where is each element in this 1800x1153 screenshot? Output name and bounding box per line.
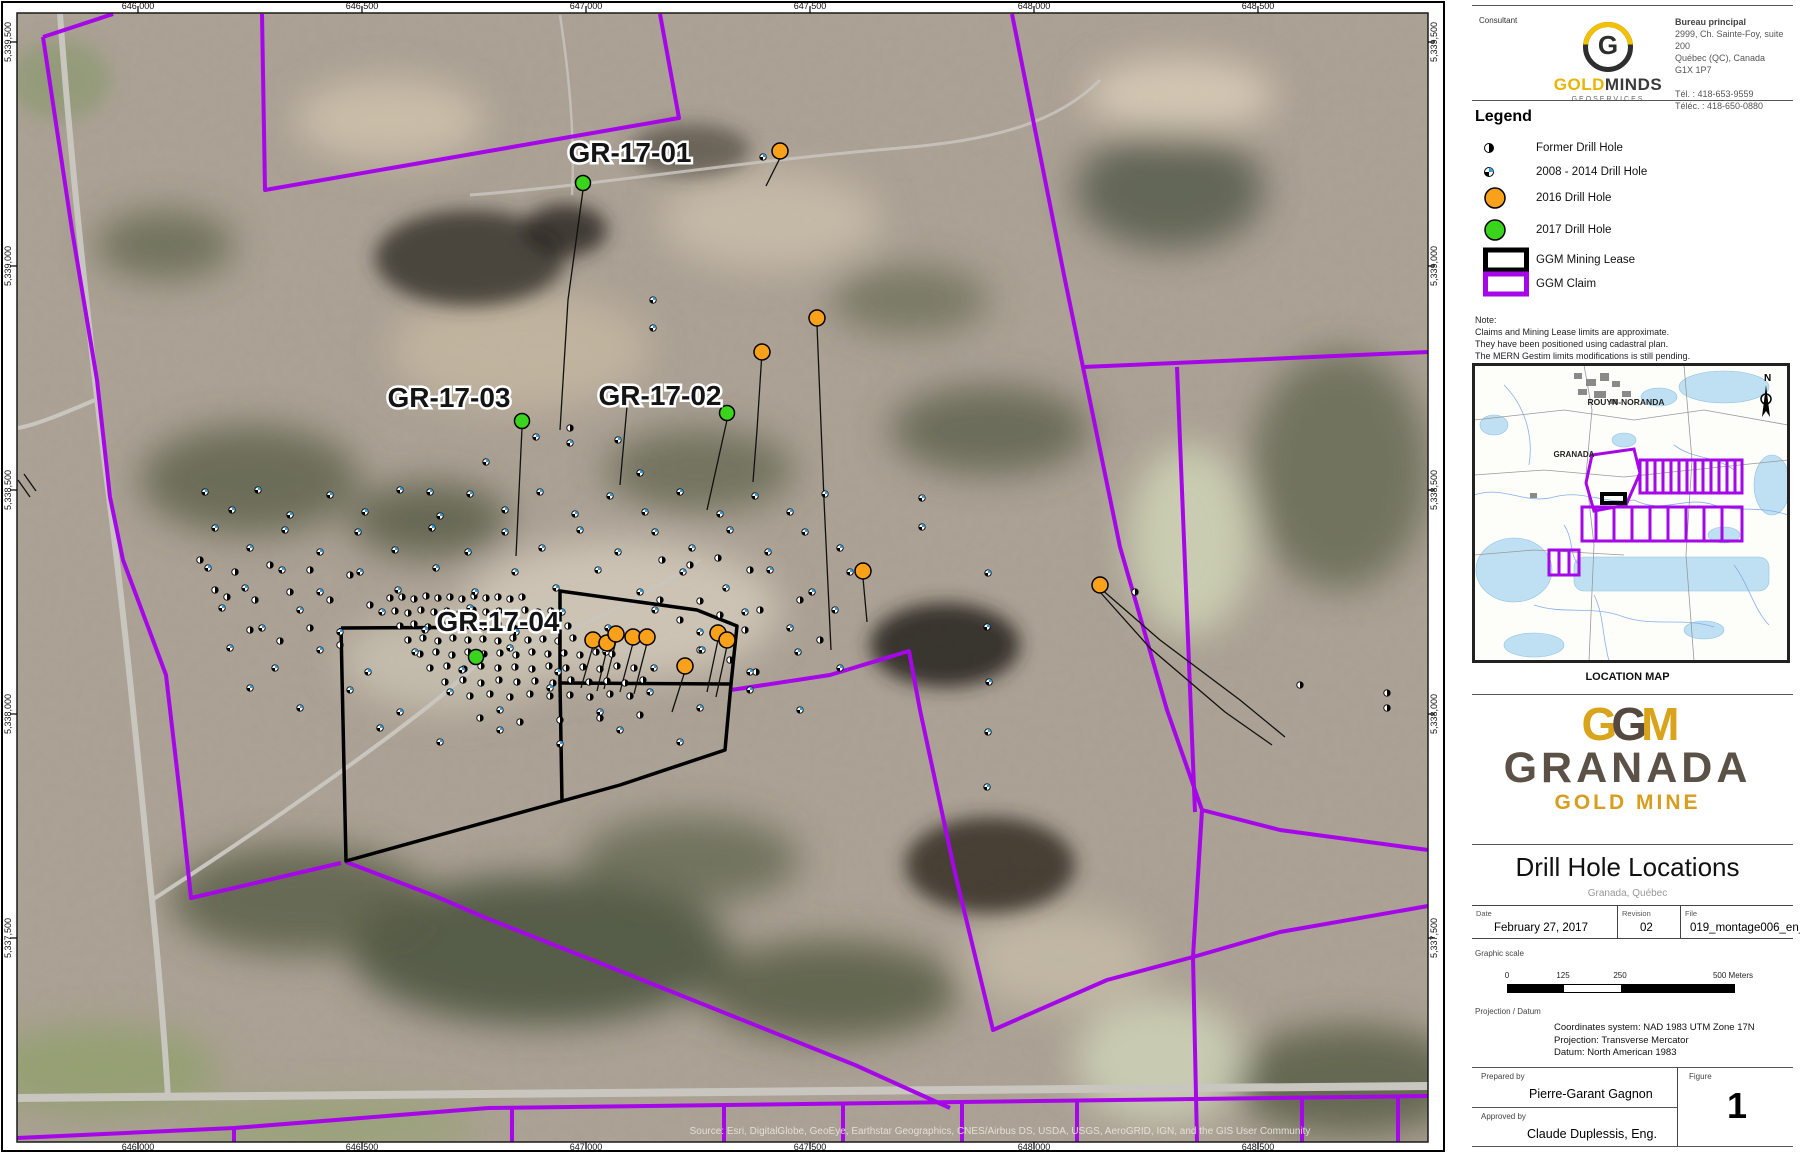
former-drill-hole xyxy=(580,664,586,670)
logo-word-dark: MINDS xyxy=(1605,75,1662,94)
former-drill-hole xyxy=(495,638,501,644)
prepared-by-label: Prepared by xyxy=(1481,1072,1525,1081)
former-drill-hole xyxy=(567,425,573,431)
former-drill-hole xyxy=(587,694,593,700)
2008-2014-drill-hole xyxy=(412,649,418,655)
former-drill-hole xyxy=(570,635,576,641)
2008-2014-drill-hole xyxy=(647,689,653,695)
former-drill-hole xyxy=(757,607,763,613)
2008-2014-drill-hole xyxy=(652,607,658,613)
2008-2014-drill-hole xyxy=(272,665,278,671)
former-drill-hole xyxy=(753,669,759,675)
former-drill-hole xyxy=(496,677,502,683)
2008-2014-drill-hole xyxy=(837,545,843,551)
former-drill-hole xyxy=(337,642,343,648)
former-drill-hole xyxy=(640,677,646,683)
2008-2014-drill-hole xyxy=(802,529,808,535)
2008-2014-drill-hole xyxy=(472,589,478,595)
former-drill-hole xyxy=(715,555,721,561)
former-drill-hole xyxy=(307,567,313,573)
2008-2014-drill-hole xyxy=(247,685,253,691)
revision-value: 02 xyxy=(1640,922,1653,934)
2008-2014-drill-hole xyxy=(986,679,992,685)
former-drill-hole xyxy=(465,637,471,643)
2008-2014-drill-hole xyxy=(747,687,753,693)
2008-2014-drill-hole xyxy=(597,709,603,715)
2008-2014-drill-hole xyxy=(984,784,990,790)
2008-2014-drill-hole xyxy=(677,739,683,745)
2008-2014-drill-hole xyxy=(985,729,991,735)
2008-2014-drill-hole xyxy=(533,434,539,440)
2008-2014-drill-hole xyxy=(615,437,621,443)
revision-label: Revision xyxy=(1622,909,1651,918)
2016-drill-hole xyxy=(809,310,825,326)
2008-2014-drill-hole xyxy=(362,509,368,515)
2008-2014-drill-hole xyxy=(847,569,853,575)
title-block-panel: Consultant G GOLDMINDS GEOSERVICES Burea… xyxy=(1455,0,1800,1153)
location-map-label: LOCATION MAP xyxy=(1455,671,1800,683)
2008-2014-drill-hole xyxy=(767,567,773,573)
2008-2014-drill-hole xyxy=(465,549,471,555)
scale-bar: 0 125 250 500 Meters xyxy=(1507,971,1747,997)
former-drill-hole xyxy=(307,625,313,631)
former-drill-hole xyxy=(747,567,753,573)
approved-by-label: Approved by xyxy=(1481,1112,1526,1121)
2008-2014-drill-hole xyxy=(279,567,285,573)
former-drill-hole xyxy=(586,679,592,685)
figure-number: 1 xyxy=(1727,1085,1747,1127)
former-drill-hole xyxy=(563,665,569,671)
former-drill-hole xyxy=(478,680,484,686)
former-drill-hole xyxy=(197,557,203,563)
2008-2014-drill-hole xyxy=(392,547,398,553)
drill-hole-label: GR-17-03 xyxy=(388,382,511,413)
former-drill-hole xyxy=(495,594,501,600)
2008-2014-drill-hole xyxy=(327,492,333,498)
former-drill-hole xyxy=(483,595,489,601)
office-title: Bureau principal xyxy=(1675,17,1746,27)
former-drill-hole xyxy=(529,666,535,672)
figure-title: Drill Hole Locations xyxy=(1455,852,1800,883)
meta-table: Date February 27, 2017 Revision 02 File … xyxy=(1472,905,1793,939)
former-drill-hole xyxy=(467,693,473,699)
map-canvas[interactable]: GR-17-01GR-17-02GR-17-03GR-17-04 Source:… xyxy=(0,0,1455,1153)
2008-2014-drill-hole xyxy=(212,525,218,531)
2008-2014-drill-hole xyxy=(680,569,686,575)
former-drill-hole xyxy=(477,715,483,721)
2016-drill-hole xyxy=(1092,577,1108,593)
former-drill-hole xyxy=(593,649,599,655)
2008-2014-drill-hole xyxy=(259,625,265,631)
former-drill-hole xyxy=(742,627,748,633)
drill-hole-label: GR-17-04 xyxy=(437,606,560,637)
legend-title: Legend xyxy=(1475,108,1532,126)
former-drill-hole xyxy=(561,650,567,656)
2008-2014-drill-hole xyxy=(557,741,563,747)
2008-2014-drill-hole xyxy=(422,627,428,633)
former-drill-hole xyxy=(565,623,571,629)
2008-2014-drill-hole xyxy=(219,605,225,611)
figure-subtitle: Granada, Québec xyxy=(1455,888,1800,899)
2008-2014-drill-hole xyxy=(429,525,435,531)
2008-2014-drill-hole xyxy=(652,529,658,535)
2008-2014-drill-hole xyxy=(727,527,733,533)
2008-2014-drill-hole xyxy=(572,511,578,517)
2008-2014-drill-hole xyxy=(919,524,925,530)
former-drill-hole xyxy=(392,608,398,614)
office-fax: Téléc. : 418-650-0880 xyxy=(1675,101,1763,111)
2008-2014-drill-hole xyxy=(832,607,838,613)
2008-2014-drill-hole xyxy=(512,569,518,575)
former-drill-hole xyxy=(657,597,663,603)
former-drill-hole xyxy=(1132,589,1138,595)
2008-2014-drill-hole xyxy=(752,493,758,499)
former-drill-hole xyxy=(727,657,733,663)
former-drill-hole xyxy=(444,663,450,669)
satellite-imagery xyxy=(0,13,1455,1153)
2017-hole-icon xyxy=(1483,218,1507,242)
2008-2014-drill-hole xyxy=(984,624,990,630)
file-label: File xyxy=(1685,909,1697,918)
2017-drill-hole xyxy=(469,650,484,665)
former-drill-hole xyxy=(447,594,453,600)
former-drill-hole xyxy=(1384,705,1390,711)
2008-2014-drill-hole xyxy=(397,487,403,493)
former-drill-hole xyxy=(405,637,411,643)
goldminds-logo: G GOLDMINDS GEOSERVICES xyxy=(1543,22,1673,103)
2016-drill-hole xyxy=(719,632,735,648)
2008-2014-drill-hole xyxy=(379,609,385,615)
graphic-scale-label: Graphic scale xyxy=(1475,949,1524,958)
2008-2014-drill-hole xyxy=(247,545,253,551)
former-drill-hole xyxy=(397,623,403,629)
2008-2014-drill-hole xyxy=(297,607,303,613)
former-drill-hole xyxy=(399,594,405,600)
former-drill-hole xyxy=(435,595,441,601)
2008-2014-drill-hole xyxy=(637,470,643,476)
2008-2014-drill-hole xyxy=(567,440,573,446)
former-drill-hole xyxy=(797,597,803,603)
former-drill-hole xyxy=(495,665,501,671)
2016-drill-hole xyxy=(585,632,601,648)
2008-2014-drill-hole xyxy=(559,609,565,615)
2008-2014-drill-hole xyxy=(227,645,233,651)
2008-2014-drill-hole xyxy=(699,647,705,653)
inset-city-granada: GRANADA xyxy=(1554,450,1595,459)
2016-drill-hole xyxy=(855,563,871,579)
former-drill-hole xyxy=(459,596,465,602)
former-drill-hole xyxy=(547,693,553,699)
2016-drill-hole xyxy=(639,629,655,645)
2008-2014-drill-hole xyxy=(539,545,545,551)
2008-2014-drill-hole xyxy=(437,513,443,519)
2008-2014-drill-hole xyxy=(447,689,453,695)
former-drill-hole xyxy=(659,557,665,563)
2016-drill-hole xyxy=(772,143,788,159)
former-drill-hole xyxy=(327,597,333,603)
former-drill-hole xyxy=(597,715,603,721)
2008-2014-drill-hole xyxy=(747,669,753,675)
2008-2014-drill-hole xyxy=(437,739,443,745)
former-drill-hole xyxy=(604,678,610,684)
2008-2014-drill-hole xyxy=(765,549,771,555)
former-drill-hole xyxy=(1297,682,1303,688)
former-hole-icon xyxy=(1483,142,1495,154)
2016-drill-hole xyxy=(754,344,770,360)
2008-2014-drill-hole xyxy=(717,511,723,517)
2008-2014-drill-hole xyxy=(205,565,211,571)
former-drill-hole xyxy=(627,693,633,699)
2008-2014-drill-hole xyxy=(459,667,465,673)
former-drill-hole xyxy=(252,597,258,603)
2008-2014-drill-hole xyxy=(317,589,323,595)
office-address: Bureau principal 2999, Ch. Sainte-Foy, s… xyxy=(1675,16,1795,112)
former-drill-hole xyxy=(433,649,439,655)
2008-2014-drill-hole xyxy=(502,507,508,513)
former-drill-hole xyxy=(405,610,411,616)
former-drill-hole xyxy=(247,627,253,633)
former-drill-hole xyxy=(513,652,519,658)
2008-2014-drill-hole xyxy=(677,489,683,495)
drill-hole-label: GR-17-02 xyxy=(599,380,722,411)
2008-2014-drill-hole xyxy=(651,665,657,671)
source-attribution: Source: Esri, DigitalGlobe, GeoEye, Eart… xyxy=(690,1126,1311,1137)
date-label: Date xyxy=(1476,909,1492,918)
inset-city-rouyn: ROUYN-NORANDA xyxy=(1588,397,1665,407)
former-drill-hole xyxy=(435,638,441,644)
projection-text: Coordinates system: NAD 1983 UTM Zone 17… xyxy=(1554,1022,1755,1060)
2008-2014-drill-hole xyxy=(919,495,925,501)
former-drill-hole xyxy=(568,677,574,683)
2008-2014-drill-hole xyxy=(809,589,815,595)
former-drill-hole xyxy=(555,638,561,644)
2008-2014-drill-hole xyxy=(607,493,613,499)
former-drill-hole xyxy=(418,607,424,613)
former-drill-hole xyxy=(614,663,620,669)
2008-2014-drill-hole xyxy=(357,569,363,575)
approved-by-value: Claude Duplessis, Eng. xyxy=(1527,1127,1657,1141)
2008-2014-drill-hole xyxy=(287,512,293,518)
former-drill-hole xyxy=(622,680,628,686)
2008-2014-drill-hole xyxy=(642,509,648,515)
2008-2014-drill-hole xyxy=(795,649,801,655)
former-drill-hole xyxy=(517,719,523,725)
2016-drill-hole xyxy=(608,626,624,642)
2008-2014-drill-hole xyxy=(985,570,991,576)
2016-drill-hole xyxy=(677,658,693,674)
former-drill-hole xyxy=(532,678,538,684)
2008-2014-drill-hole xyxy=(787,509,793,515)
2008-2014-drill-hole xyxy=(502,529,508,535)
2008-2014-drill-hole xyxy=(650,297,656,303)
2008-2014-drill-hole xyxy=(483,459,489,465)
figure-page: GR-17-01GR-17-02GR-17-03GR-17-04 Source:… xyxy=(0,0,1800,1153)
2008-2014-drill-hole xyxy=(317,549,323,555)
former-drill-hole xyxy=(277,638,283,644)
2008-2014-drill-hole xyxy=(397,709,403,715)
former-drill-hole xyxy=(607,691,613,697)
2008-2014-drill-hole xyxy=(822,491,828,497)
former-drill-hole xyxy=(212,587,218,593)
2008-2014-drill-hole xyxy=(537,489,543,495)
2008-2014-drill-hole xyxy=(697,629,703,635)
2008-2014-drill-hole xyxy=(742,609,748,615)
svg-text:N: N xyxy=(1764,373,1771,384)
2008-2014-drill-hole xyxy=(837,665,843,671)
former-drill-hole xyxy=(427,665,433,671)
former-drill-hole xyxy=(529,649,535,655)
brand-tagline: GOLD MINE xyxy=(1455,790,1800,816)
claim-swatch xyxy=(1483,272,1529,297)
former-drill-hole xyxy=(497,650,503,656)
2008-2014-drill-hole xyxy=(617,727,623,733)
2008-2014-drill-hole xyxy=(497,707,503,713)
former-drill-hole xyxy=(232,569,238,575)
2008-2014-drill-hole xyxy=(282,527,288,533)
2008-2014-drill-hole xyxy=(347,687,353,693)
2008-2014-drill-hole xyxy=(723,585,729,591)
brand-name: GRANADA xyxy=(1455,746,1800,790)
2008-2014-drill-hole xyxy=(555,669,561,675)
2008-2014-drill-hole xyxy=(202,489,208,495)
note-block: Note: Claims and Mining Lease limits are… xyxy=(1475,314,1690,362)
2008-2014-drill-hole xyxy=(355,529,361,535)
former-drill-hole xyxy=(507,694,513,700)
2008-2014-drill-hole xyxy=(467,491,473,497)
2008-2014-drill-hole xyxy=(507,645,513,651)
2017-drill-hole xyxy=(576,176,591,191)
former-drill-hole xyxy=(597,666,603,672)
2008-2014-drill-hole xyxy=(427,489,433,495)
former-drill-hole xyxy=(224,594,230,600)
2016-hole-icon xyxy=(1483,186,1507,210)
former-drill-hole xyxy=(577,652,583,658)
2008-2014-drill-hole xyxy=(547,685,553,691)
former-drill-hole xyxy=(411,621,417,627)
2008-2014-drill-hole xyxy=(433,565,439,571)
consultant-label: Consultant xyxy=(1479,16,1517,25)
2008-2014-drill-hole xyxy=(797,707,803,713)
former-drill-hole xyxy=(546,663,552,669)
former-drill-hole xyxy=(287,589,293,595)
former-drill-hole xyxy=(460,677,466,683)
date-value: February 27, 2017 xyxy=(1494,922,1588,934)
former-drill-hole xyxy=(697,598,703,604)
ggm-logo: GGM xyxy=(1455,702,1800,746)
2008-2014-drill-hole xyxy=(365,669,371,675)
prepared-by-value: Pierre-Garant Gagnon xyxy=(1529,1087,1653,1101)
former-drill-hole xyxy=(717,612,723,618)
former-drill-hole xyxy=(557,717,563,723)
2008-hole-icon xyxy=(1483,166,1495,178)
logo-word-gold: GOLD xyxy=(1554,75,1605,94)
2008-2014-drill-hole xyxy=(242,585,248,591)
2008-2014-drill-hole xyxy=(760,154,766,160)
former-drill-hole xyxy=(631,665,637,671)
former-drill-hole xyxy=(609,651,615,657)
former-drill-hole xyxy=(525,637,531,643)
drill-hole-label: GR-17-01 xyxy=(569,137,692,168)
former-drill-hole xyxy=(567,692,573,698)
former-drill-hole xyxy=(442,679,448,685)
former-drill-hole xyxy=(267,562,273,568)
2008-2014-drill-hole xyxy=(637,589,643,595)
lease-swatch xyxy=(1483,248,1529,273)
former-drill-hole xyxy=(519,594,525,600)
former-drill-hole xyxy=(367,602,373,608)
location-map-inset[interactable]: ROUYN-NORANDA GRANADA N xyxy=(1472,363,1790,663)
former-drill-hole xyxy=(487,691,493,697)
2008-2014-drill-hole xyxy=(337,629,343,635)
2008-2014-drill-hole xyxy=(255,487,261,493)
2008-2014-drill-hole xyxy=(689,545,695,551)
2017-drill-hole xyxy=(720,406,735,421)
former-drill-hole xyxy=(677,617,683,623)
former-drill-hole xyxy=(347,572,353,578)
2017-drill-hole xyxy=(515,414,530,429)
former-drill-hole xyxy=(1384,690,1390,696)
2008-2014-drill-hole xyxy=(615,549,621,555)
goldminds-g-icon: G xyxy=(1583,22,1633,72)
2008-2014-drill-hole xyxy=(577,527,583,533)
former-drill-hole xyxy=(449,652,455,658)
former-drill-hole xyxy=(411,596,417,602)
file-value: 019_montage006_en_r02 xyxy=(1690,922,1800,934)
former-drill-hole xyxy=(423,593,429,599)
2008-2014-drill-hole xyxy=(553,585,559,591)
2008-2014-drill-hole xyxy=(595,567,601,573)
2008-2014-drill-hole xyxy=(395,587,401,593)
2008-2014-drill-hole xyxy=(650,325,656,331)
2008-2014-drill-hole xyxy=(297,705,303,711)
former-drill-hole xyxy=(514,679,520,685)
2008-2014-drill-hole xyxy=(497,727,503,733)
2008-2014-drill-hole xyxy=(317,647,323,653)
former-drill-hole xyxy=(420,635,426,641)
former-drill-hole xyxy=(507,596,513,602)
office-phone: Tél. : 418-653-9559 xyxy=(1675,89,1754,99)
projection-label: Projection / Datum xyxy=(1475,1007,1541,1016)
2008-2014-drill-hole xyxy=(787,625,793,631)
2008-2014-drill-hole xyxy=(229,507,235,513)
former-drill-hole xyxy=(637,712,643,718)
former-drill-hole xyxy=(387,595,393,601)
2008-2014-drill-hole xyxy=(377,725,383,731)
former-drill-hole xyxy=(817,637,823,643)
2008-2014-drill-hole xyxy=(697,705,703,711)
granada-brand: GGM GRANADA GOLD MINE xyxy=(1455,702,1800,816)
former-drill-hole xyxy=(545,651,551,657)
former-drill-hole xyxy=(527,691,533,697)
figure-number-label: Figure xyxy=(1689,1072,1712,1081)
former-drill-hole xyxy=(687,562,693,568)
former-drill-hole xyxy=(512,664,518,670)
